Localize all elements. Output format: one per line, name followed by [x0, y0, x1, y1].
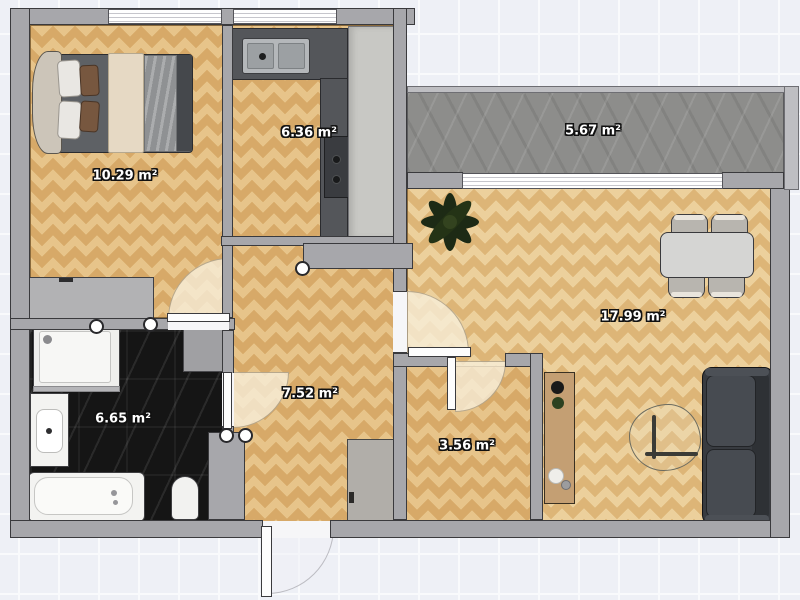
- wall-handle-dot[interactable]: [295, 261, 310, 276]
- floor-plan-canvas: 10.29 m² 6.36 m² 5.67 m² 17.99 m² 7.52 m…: [0, 0, 800, 600]
- bedroom-window[interactable]: [108, 9, 222, 24]
- bathtub-inner: [34, 477, 133, 515]
- bed-pillow-accent: [79, 65, 100, 97]
- bed-pillow: [57, 100, 82, 139]
- bathroom-vanity[interactable]: [30, 393, 69, 467]
- storage-room-area-label: 3.56 m²: [439, 439, 495, 454]
- living-door-opening: [393, 292, 407, 352]
- wall-living-north-b[interactable]: [722, 172, 784, 189]
- wall-handle-dot[interactable]: [89, 319, 104, 334]
- bathroom-area-label: 6.65 m²: [95, 412, 151, 427]
- chair-backrest: [671, 292, 702, 297]
- kitchen-window[interactable]: [233, 9, 337, 24]
- console-item-dark: [551, 381, 564, 394]
- wall-balcony-north[interactable]: [407, 86, 799, 93]
- coffee-table-leg: [645, 452, 698, 456]
- bathtub[interactable]: [28, 472, 145, 522]
- bathtub-faucet: [113, 500, 118, 505]
- wall-handle-dot[interactable]: [143, 317, 158, 332]
- shower-glass: [33, 386, 120, 392]
- plant[interactable]: [421, 190, 479, 254]
- chair-backrest: [714, 215, 745, 220]
- hallway-cabinet[interactable]: [347, 439, 394, 521]
- wall-living-north-a[interactable]: [407, 172, 463, 189]
- console-item-bowl: [561, 480, 571, 490]
- wall-handle-dot[interactable]: [219, 428, 234, 443]
- wall-living-west-lower[interactable]: [393, 352, 407, 520]
- bathtub-faucet: [111, 490, 117, 496]
- living-room-window[interactable]: [462, 173, 723, 189]
- entry-door-leaf[interactable]: [261, 526, 272, 597]
- stove-burner: [332, 175, 341, 184]
- living-room-area-label: 17.99 m²: [601, 310, 666, 325]
- sink-basin: [278, 43, 305, 69]
- bedroom-door-leaf[interactable]: [167, 313, 230, 322]
- kitchen-sink[interactable]: [242, 38, 310, 74]
- bed-pillow: [57, 59, 83, 98]
- wardrobe-handle: [59, 278, 73, 282]
- kitchen-tall-cabinet[interactable]: [348, 26, 394, 239]
- wall-bathroom-east-up[interactable]: [222, 330, 234, 374]
- bed[interactable]: [32, 51, 197, 155]
- shower-head: [43, 335, 52, 344]
- wall-balcony-east[interactable]: [784, 86, 799, 190]
- wall-bathroom-duct[interactable]: [208, 432, 245, 520]
- console-shelf[interactable]: [544, 372, 575, 504]
- chair-backrest: [711, 292, 742, 297]
- hallway-area-label: 7.52 m²: [282, 387, 338, 402]
- bedroom-area-label: 10.29 m²: [93, 169, 158, 184]
- plant-center: [443, 215, 457, 229]
- sink-faucet: [259, 53, 266, 60]
- vanity-faucet: [46, 428, 52, 434]
- bed-blanket-edge: [177, 55, 192, 151]
- wall-storage-east[interactable]: [530, 353, 543, 520]
- toilet[interactable]: [171, 476, 199, 520]
- bedroom-wardrobe[interactable]: [28, 277, 154, 320]
- sofa-cushion: [706, 449, 756, 518]
- kitchen-area-label: 6.36 m²: [281, 126, 337, 141]
- stove[interactable]: [324, 136, 349, 198]
- dining-table[interactable]: [660, 232, 754, 278]
- wall-left[interactable]: [10, 8, 30, 538]
- bed-blanket: [144, 55, 177, 152]
- sofa[interactable]: [702, 367, 774, 525]
- wall-bedroom-east[interactable]: [222, 25, 233, 318]
- bed-duvet: [108, 53, 144, 153]
- wall-hall-block[interactable]: [303, 243, 413, 269]
- hallway-cabinet-handle: [349, 492, 354, 503]
- bed-pillow-accent: [79, 100, 100, 132]
- wall-handle-dot[interactable]: [238, 428, 253, 443]
- bathroom-door-leaf[interactable]: [223, 372, 232, 429]
- stove-burner: [332, 155, 341, 164]
- balcony-area-label: 5.67 m²: [565, 124, 621, 139]
- sofa-armrest: [705, 368, 769, 376]
- coffee-table[interactable]: [629, 404, 701, 471]
- entry-door-opening: [263, 521, 330, 538]
- storage-door-leaf[interactable]: [447, 357, 456, 410]
- shower[interactable]: [33, 326, 120, 392]
- living-door-leaf[interactable]: [408, 347, 471, 357]
- console-item-plant: [552, 397, 564, 409]
- chair-backrest: [674, 215, 705, 220]
- wall-bottom-right[interactable]: [330, 520, 790, 538]
- wall-right[interactable]: [770, 186, 790, 538]
- sofa-cushion: [706, 375, 756, 447]
- wall-bottom-left[interactable]: [10, 520, 263, 538]
